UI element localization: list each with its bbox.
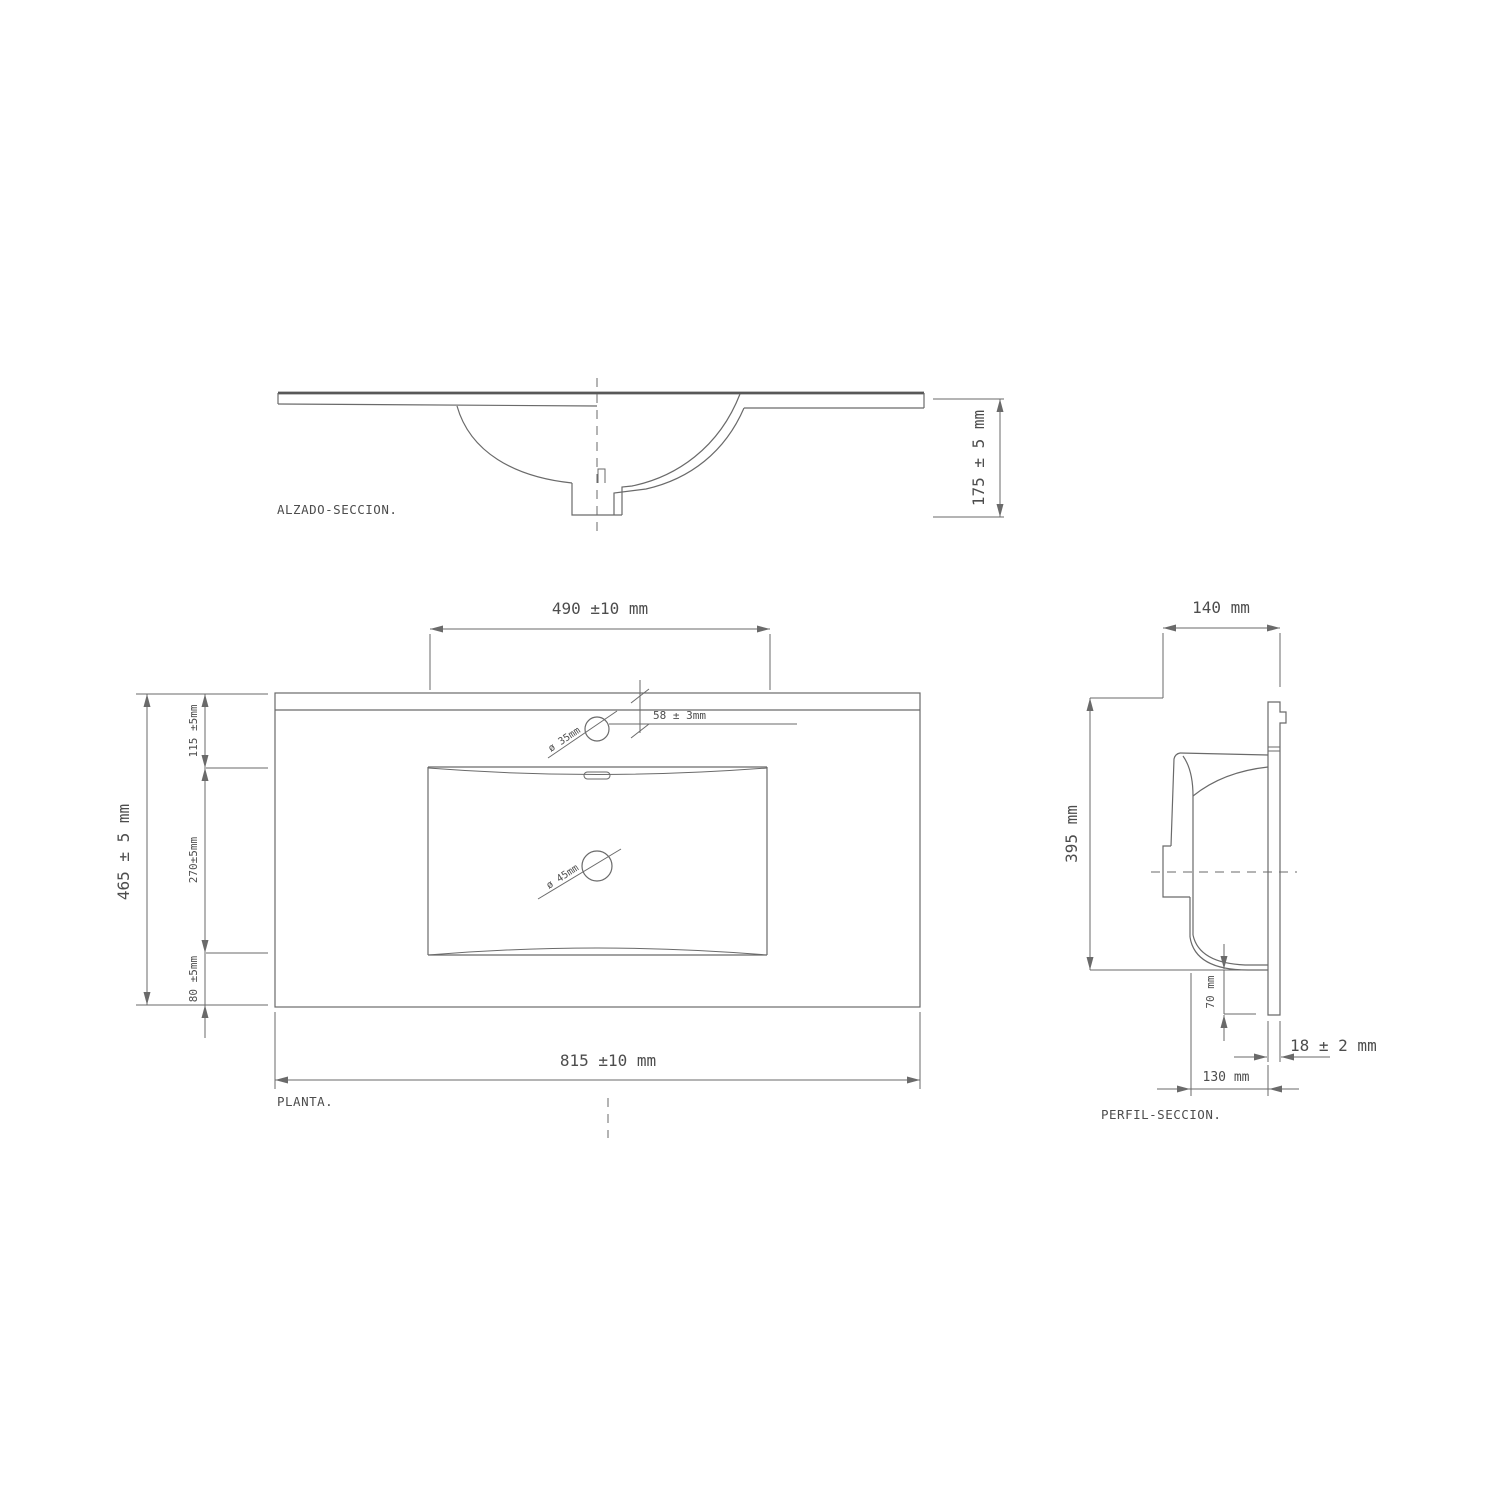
dim-815-label: 815 ±10 mm [560, 1051, 656, 1070]
planta-view-label: PLANTA. [277, 1094, 333, 1109]
overflow-channel-section [598, 469, 605, 483]
sink-front-edge [1171, 753, 1180, 846]
dim-80-label: 80 ±5mm [187, 955, 200, 1002]
bowl-right-outer-curve [622, 394, 740, 515]
perfil-view-label: PERFIL-SECCION. [1101, 1107, 1221, 1122]
faucet-hole [585, 717, 609, 741]
dim-465-label: 465 ± 5 mm [114, 804, 133, 900]
dim-58-label: 58 ± 3mm [653, 709, 706, 722]
dim-18-label: 18 ± 2 mm [1290, 1036, 1377, 1055]
back-panel-outline [1268, 702, 1286, 1015]
countertop-outline [275, 693, 920, 1007]
perfil-view: 140 mm 395 mm 70 mm 18 ± 2 mm 130 mm [1062, 598, 1377, 1122]
alzado-view-label: ALZADO-SECCION. [277, 502, 397, 517]
drain-hole [582, 851, 612, 881]
bowl-left-outer-curve [457, 406, 572, 483]
dim-130-label: 130 mm [1203, 1070, 1250, 1085]
planta-view: ø 35mm 58 ± 3mm ø 45mm 490 ±10 mm 465 ± … [114, 599, 920, 1138]
drain-hole-label: ø 45mm [545, 863, 581, 892]
alzado-view: 175 ± 5 mm ALZADO-SECCION. [277, 378, 1004, 533]
overflow-slot [584, 772, 610, 779]
basin-bottom-bulge-curve [428, 948, 767, 955]
basin-top-sag-curve [428, 768, 767, 775]
dim-270-label: 270±5mm [187, 836, 200, 883]
dim-175-label: 175 ± 5 mm [969, 410, 988, 506]
sink-inner-front-wall [1183, 756, 1193, 935]
dim-140-label: 140 mm [1192, 598, 1250, 617]
counter-underside-left [278, 404, 597, 406]
faucet-hole-label: ø 35mm [547, 725, 583, 754]
dim-115-label: 115 ±5mm [187, 704, 200, 757]
dim-395-label: 395 mm [1062, 805, 1081, 863]
faucet-hole-diagonal [548, 711, 617, 758]
sink-technical-drawing: 175 ± 5 mm ALZADO-SECCION. ø 35mm 58 ± 3… [0, 0, 1500, 1500]
sink-rim-top [1180, 753, 1268, 755]
sink-inner-back-slope [1193, 767, 1268, 796]
dim-490-label: 490 ±10 mm [552, 599, 648, 618]
dim-70-label: 70 mm [1204, 975, 1217, 1008]
